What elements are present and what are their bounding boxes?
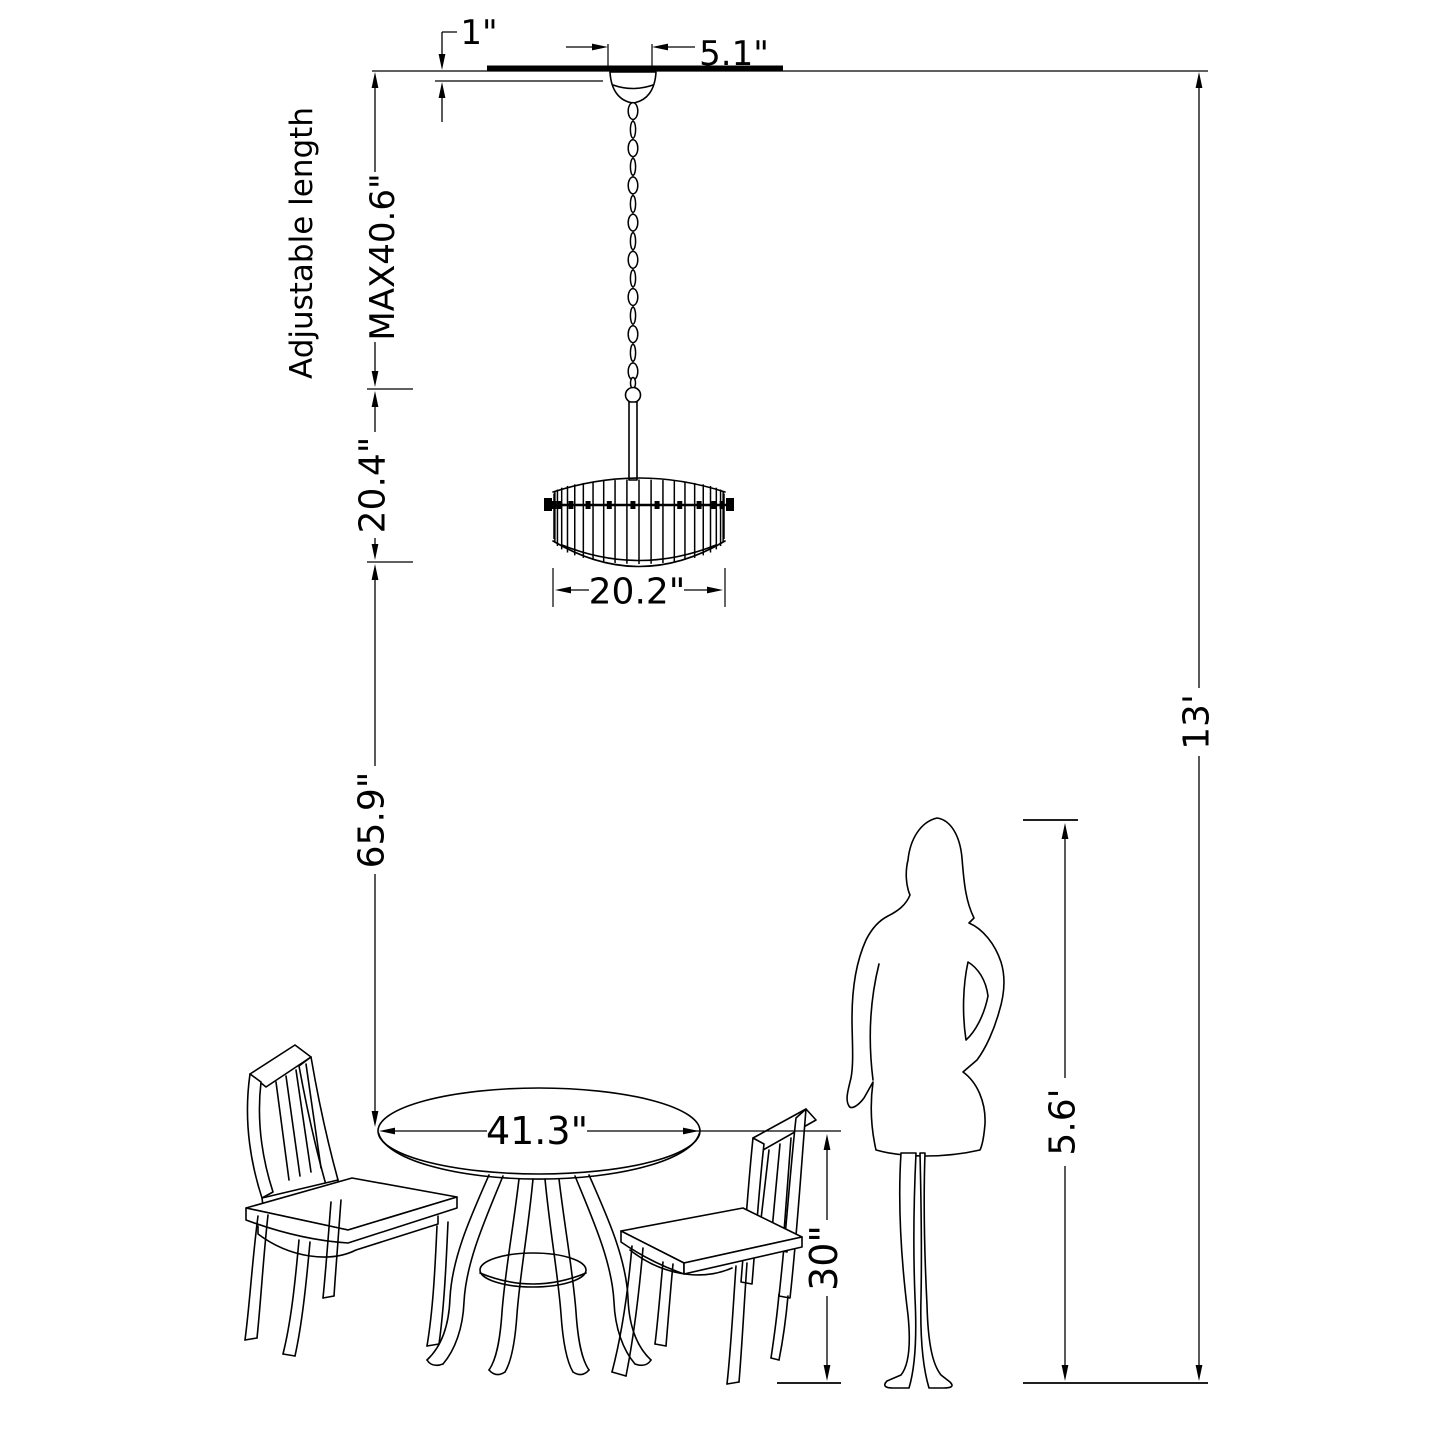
chain — [628, 103, 638, 389]
label-table-height: 30" — [802, 1225, 846, 1291]
stem-rod — [629, 402, 637, 480]
label-fixture-diameter: 20.2" — [589, 572, 686, 613]
dimension-arrows — [372, 44, 1203, 1381]
canopy — [610, 72, 656, 103]
dining-chair-left — [245, 1045, 457, 1356]
label-fixture-height: 20.4" — [353, 437, 394, 534]
label-hanging-clearance: 65.9" — [352, 772, 393, 869]
ceiling — [372, 66, 1208, 82]
label-max-length: MAX40.6" — [363, 173, 403, 340]
chandelier — [544, 72, 734, 567]
person-silhouette — [847, 818, 1004, 1388]
label-person-height: 5.6' — [1043, 1088, 1084, 1155]
chain-ring — [626, 388, 641, 403]
label-adjustable-length: Adjustable length — [284, 107, 320, 379]
drum-shade — [544, 478, 734, 567]
dimension-labels: 1" 5.1" Adjustable length MAX40.6" 20.4"… — [284, 13, 1218, 1291]
label-ceiling-height: 13' — [1177, 694, 1218, 750]
dimension-diagram: 1" 5.1" Adjustable length MAX40.6" 20.4"… — [0, 0, 1445, 1445]
label-table-diameter: 41.3" — [486, 1109, 588, 1153]
label-canopy-width: 5.1" — [699, 34, 769, 74]
label-canopy-inset: 1" — [460, 13, 497, 53]
